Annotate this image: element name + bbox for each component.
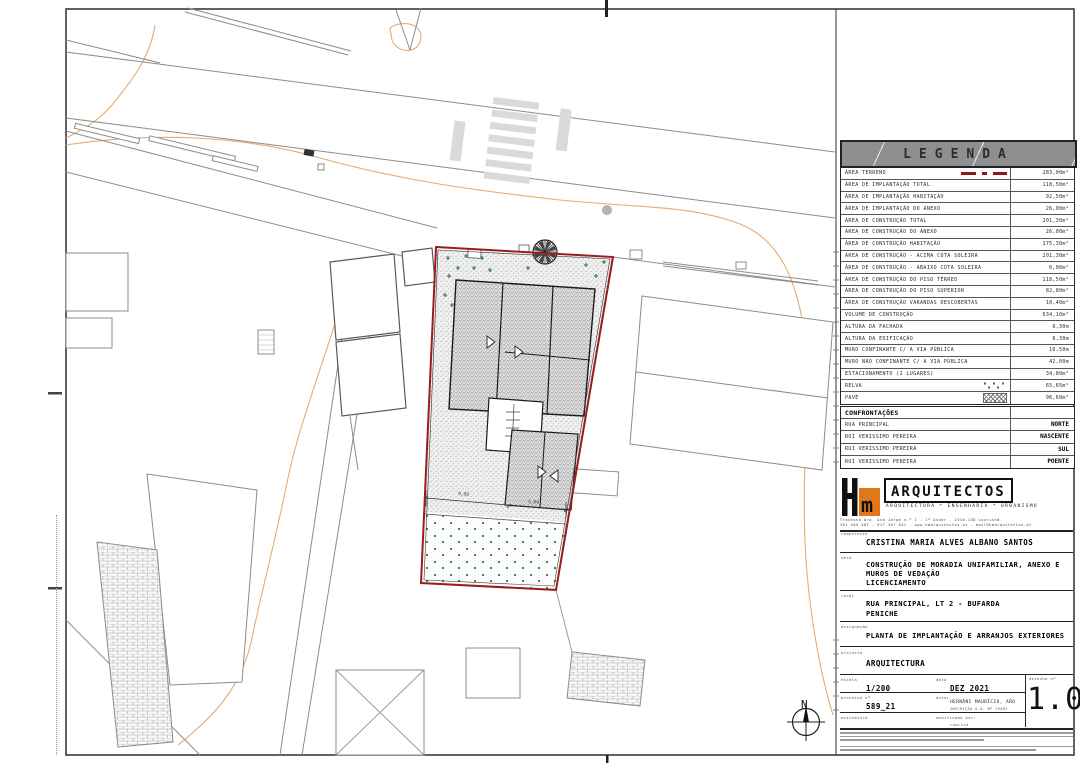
rule bbox=[840, 728, 1073, 730]
legend-row: MURO NÃO CONFINANTE C/ A VIA PÚBLICA42,0… bbox=[841, 357, 1074, 369]
legend-row-label: ALTURA DA EDIFICAÇÃO bbox=[841, 333, 1011, 344]
confrontation-direction: POENTE bbox=[1011, 458, 1074, 465]
crosswalk bbox=[448, 93, 572, 188]
legend-row: ÁREA DE CONSTRUÇÃO VARANDAS DESCOBERTAS1… bbox=[841, 298, 1074, 310]
rule bbox=[840, 590, 1073, 591]
requerente-label: requerente bbox=[841, 531, 868, 536]
red-dashdot-symbol bbox=[961, 172, 1007, 175]
rule bbox=[840, 646, 1073, 647]
confrontations-table: CONFRONTAÇÕESRUA PRINCIPALNORTERUI VERIS… bbox=[840, 406, 1075, 469]
designacao-value: PLANTA DE IMPLANTAÇÃO E ARRANJOS EXTERIO… bbox=[866, 632, 1064, 640]
legend-row-value: 10,50m bbox=[1011, 347, 1074, 353]
assinatura-label: assinatura bbox=[841, 715, 868, 720]
firm-block: m ARQUITECTOS ARQUITECTURA * ENGENHARIA … bbox=[840, 474, 1073, 518]
confrontation-row: RUI VERISSIMO PEREIRANASCENTE bbox=[841, 431, 1074, 443]
legend-row: ÁREA DE IMPLANTAÇÃO TOTAL118,50m² bbox=[841, 180, 1074, 192]
fold-mark-bottom bbox=[606, 755, 609, 763]
modificado-label: modificado por: bbox=[936, 715, 976, 720]
legend-row: ÁREA DE CONSTRUÇÃO - ACIMA COTA SOLEIRA2… bbox=[841, 251, 1074, 263]
margin-stamp-line bbox=[56, 515, 57, 755]
legend-row-value: 634,10m³ bbox=[1011, 312, 1074, 318]
rubrica-label: rubrica bbox=[950, 722, 969, 727]
legend-row-label: ÁREA TERRENO bbox=[841, 168, 1011, 179]
legend-row-label: ÁREA DE CONSTRUÇÃO DO PISO SUPERIOR bbox=[841, 286, 1011, 297]
confrontation-side: RUI VERISSIMO PEREIRA bbox=[841, 444, 1011, 455]
confrontation-side: RUA PRINCIPAL bbox=[841, 419, 1011, 430]
requerente-value: CRISTINA MARIA ALVES ALBANO SANTOS bbox=[866, 538, 1033, 547]
legend-row: ÁREA DE CONSTRUÇÃO - ABAIXO COTA SOLEIRA… bbox=[841, 262, 1074, 274]
legend-row-value: 175,30m² bbox=[1011, 241, 1074, 247]
legend-row-value: 283,00m² bbox=[1011, 170, 1074, 176]
escala-label: escala bbox=[841, 677, 857, 682]
legend-row-value: 82,80m² bbox=[1011, 288, 1074, 294]
legend-row-value: 201,30m² bbox=[1011, 218, 1074, 224]
confrontations-title: CONFRONTAÇÕES bbox=[841, 407, 1011, 418]
legend-row: ALTURA DA FACHADA6,30m bbox=[841, 321, 1074, 333]
autor-label: autor bbox=[936, 695, 949, 700]
dimension-label: 5,04 bbox=[528, 499, 540, 506]
rule bbox=[840, 692, 1025, 693]
rule bbox=[840, 674, 1073, 675]
legend-row-label: ÁREA DE CONSTRUÇÃO - ACIMA COTA SOLEIRA bbox=[841, 251, 1011, 262]
legend-row-value: 26,00m² bbox=[1011, 229, 1074, 235]
legend-row-label: ÁREA DE CONSTRUÇÃO - ABAIXO COTA SOLEIRA bbox=[841, 262, 1011, 273]
autor-name: HERNÂNI MAURÍCIO, ARQ bbox=[950, 700, 1015, 705]
legend-row-value: 201,30m² bbox=[1011, 253, 1074, 259]
pave-symbol bbox=[983, 393, 1007, 403]
confrontation-direction: NORTE bbox=[1011, 421, 1074, 428]
legend-row: MURO CONFINANTE C/ A VIA PÚBLICA10,50m bbox=[841, 345, 1074, 357]
legend-row-label: ÁREA DE CONSTRUÇÃO HABITAÇÃO bbox=[841, 239, 1011, 250]
fold-mark-top bbox=[605, 0, 608, 17]
confrontation-side: RUI VERISSIMO PEREIRA bbox=[841, 431, 1011, 442]
confrontation-row: RUI VERISSIMO PEREIRAPOENTE bbox=[841, 456, 1074, 468]
legend-row: VOLUME DE CONSTRUÇÃO634,10m³ bbox=[841, 310, 1074, 322]
legend-row-label: ÁREA DE IMPLANTAÇÃO HABITAÇÃO bbox=[841, 192, 1011, 203]
legend-row-label: ÁREA DE CONSTRUÇÃO DO PISO TÉRREO bbox=[841, 274, 1011, 285]
local-value: RUA PRINCIPAL, LT 2 - BUFARDA PENICHE bbox=[866, 599, 1000, 619]
legend-row: ESTACIONAMENTO (2 LUGARES)34,80m² bbox=[841, 369, 1074, 381]
data-label: data bbox=[936, 677, 947, 682]
processo-label: processo nº bbox=[841, 695, 871, 700]
lot-grass-area bbox=[421, 514, 566, 589]
legend-title: LEGENDA bbox=[903, 147, 1014, 162]
fold-mark-left-2 bbox=[48, 587, 62, 590]
hm-logo-icon: m bbox=[840, 476, 880, 516]
firm-address-line2: 261 469 481 - 917 367 641 - www.hmarquit… bbox=[840, 523, 1073, 528]
legend-row-label: VOLUME DE CONSTRUÇÃO bbox=[841, 310, 1011, 321]
projecto-label: projecto bbox=[841, 650, 863, 655]
firm-tagline: ARQUITECTURA * ENGENHARIA * URBANISMO bbox=[886, 504, 1038, 509]
desenho-cell-divider bbox=[1025, 674, 1026, 727]
confrontation-direction: NASCENTE bbox=[1011, 433, 1074, 440]
north-arrow: N bbox=[787, 698, 825, 741]
legend-row-label: MURO CONFINANTE C/ A VIA PÚBLICA bbox=[841, 345, 1011, 356]
legend-table: ÁREA TERRENO283,00m²ÁREA DE IMPLANTAÇÃO … bbox=[840, 167, 1075, 405]
legend-row-value: 6,30m bbox=[1011, 336, 1074, 342]
legend-row-label: ÁREA DE CONSTRUÇÃO TOTAL bbox=[841, 215, 1011, 226]
legend-row-value: 42,00m bbox=[1011, 359, 1074, 365]
legend-row-label: ESTACIONAMENTO (2 LUGARES) bbox=[841, 369, 1011, 380]
firm-address: Travessa Dra. Ana Jorge n.º 1 - 1º Andar… bbox=[840, 518, 1073, 532]
projecto-value: ARQUITECTURA bbox=[866, 659, 925, 668]
rule bbox=[840, 621, 1073, 622]
legend-row: ÁREA DE CONSTRUÇÃO TOTAL201,30m² bbox=[841, 215, 1074, 227]
legend-row: ÁREA TERRENO283,00m² bbox=[841, 168, 1074, 180]
fold-mark-left-1 bbox=[48, 392, 62, 395]
legend-row-value: 118,50m² bbox=[1011, 182, 1074, 188]
legend-row-value: 10,40m² bbox=[1011, 300, 1074, 306]
rule bbox=[840, 712, 1025, 713]
designacao-label: designação bbox=[841, 624, 868, 629]
legend-row: ÁREA DE CONSTRUÇÃO DO PISO SUPERIOR82,80… bbox=[841, 286, 1074, 298]
svg-text:m: m bbox=[861, 493, 873, 516]
legend-row: ÁREA DE IMPLANTAÇÃO HABITAÇÃO92,50m² bbox=[841, 192, 1074, 204]
rule bbox=[840, 552, 1073, 553]
drawing-sheet: 9,98 5,04 N LEGENDA ÁREA TERRENO283,00m²… bbox=[0, 0, 1080, 763]
grass-symbol bbox=[981, 381, 1007, 390]
legend-row-label: PAVÉ bbox=[841, 392, 1011, 404]
legend-row-value: 118,50m² bbox=[1011, 277, 1074, 283]
legend-row: ÁREA DE CONSTRUÇÃO HABITAÇÃO175,30m² bbox=[841, 239, 1074, 251]
legend-row-label: RELVA bbox=[841, 380, 1011, 391]
legend-row-value: 65,65m² bbox=[1011, 383, 1074, 389]
processo-value: 589_21 bbox=[866, 702, 896, 711]
legend-row-value: 34,80m² bbox=[1011, 371, 1074, 377]
lot: 9,98 5,04 bbox=[421, 240, 613, 590]
legend-row-label: ÁREA DE IMPLANTAÇÃO DO ANEXO bbox=[841, 203, 1011, 214]
legend-row-value: 6,30m bbox=[1011, 324, 1074, 330]
firm-name: ARQUITECTOS bbox=[891, 484, 1006, 500]
firm-name-box: ARQUITECTOS bbox=[884, 478, 1013, 503]
legend-row-label: MURO NÃO CONFINANTE C/ A VIA PÚBLICA bbox=[841, 357, 1011, 368]
local-label: local bbox=[841, 593, 854, 598]
legend-row: PAVÉ96,60m² bbox=[841, 392, 1074, 404]
autor-registration: INSCRIÇÃO O.A. Nº 19462 bbox=[950, 707, 1008, 711]
legend-row: ÁREA DE IMPLANTAÇÃO DO ANEXO26,00m² bbox=[841, 203, 1074, 215]
confrontations-header: CONFRONTAÇÕES bbox=[841, 407, 1074, 419]
confrontation-side: RUI VERISSIMO PEREIRA bbox=[841, 456, 1011, 468]
legend-row-label: ALTURA DA FACHADA bbox=[841, 321, 1011, 332]
legend-row: ÁREA DE CONSTRUÇÃO DO PISO TÉRREO118,50m… bbox=[841, 274, 1074, 286]
obra-label: obra bbox=[841, 555, 852, 560]
legend-row-label: ÁREA DE CONSTRUÇÃO VARANDAS DESCOBERTAS bbox=[841, 298, 1011, 309]
legend-row: ALTURA DA EDIFICAÇÃO6,30m bbox=[841, 333, 1074, 345]
drawing-number: 1.00 bbox=[1027, 677, 1073, 723]
legend-row-value: 0,00m² bbox=[1011, 265, 1074, 271]
confrontation-direction: SUL bbox=[1011, 446, 1074, 453]
confrontation-row: RUA PRINCIPALNORTE bbox=[841, 419, 1074, 431]
legend-row: ÁREA DE CONSTRUÇÃO DO ANEXO26,00m² bbox=[841, 227, 1074, 239]
fine-print-text bbox=[840, 732, 1073, 753]
legend-row-value: 92,50m² bbox=[1011, 194, 1074, 200]
legend-row: RELVA65,65m² bbox=[841, 380, 1074, 392]
house-footprint bbox=[449, 280, 595, 416]
obra-value: CONSTRUÇÃO DE MORADIA UNIFAMILIAR, ANEXO… bbox=[866, 561, 1060, 588]
dimension-label: 9,98 bbox=[458, 491, 470, 498]
legend-row-value: 26,00m² bbox=[1011, 206, 1074, 212]
confrontation-row: RUI VERISSIMO PEREIRASUL bbox=[841, 444, 1074, 456]
legend-header: LEGENDA bbox=[840, 140, 1077, 168]
legend-row-label: ÁREA DE CONSTRUÇÃO DO ANEXO bbox=[841, 227, 1011, 238]
legend-row-value: 96,60m² bbox=[1011, 395, 1074, 401]
legend-row-label: ÁREA DE IMPLANTAÇÃO TOTAL bbox=[841, 180, 1011, 191]
